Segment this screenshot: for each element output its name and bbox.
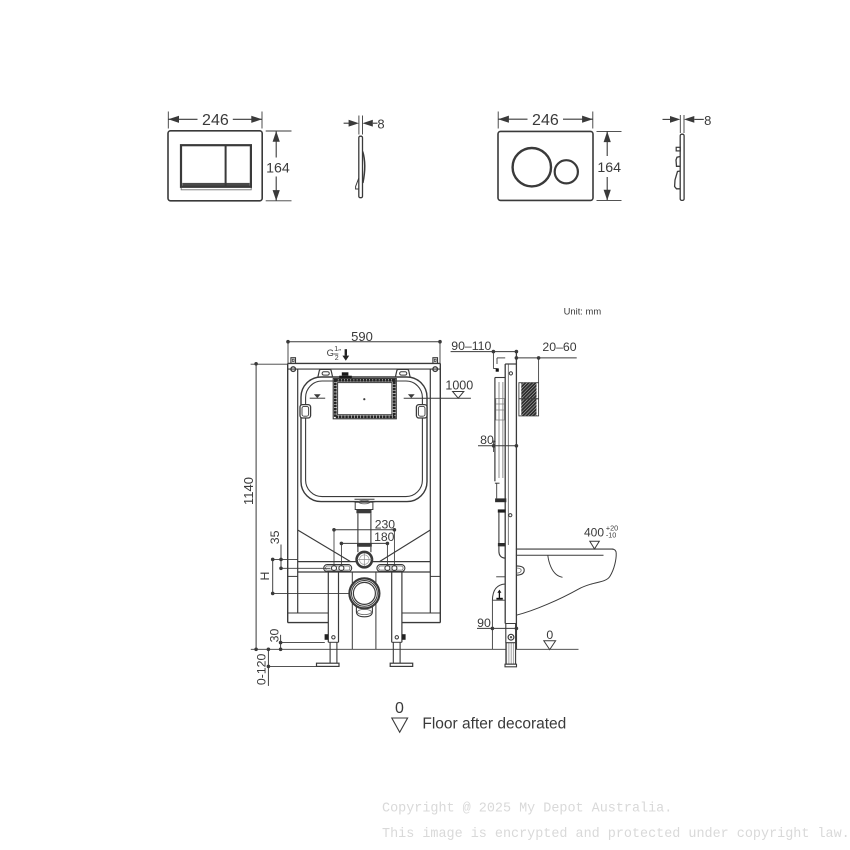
svg-text:246: 246	[532, 112, 559, 129]
svg-text:Floor after decorated: Floor after decorated	[422, 716, 566, 733]
svg-text:164: 164	[597, 160, 621, 176]
svg-text:0: 0	[395, 700, 404, 717]
svg-text:Copyright @ 2025 My Depot Aust: Copyright @ 2025 My Depot Australia.	[382, 802, 672, 817]
svg-text:246: 246	[202, 112, 229, 129]
svg-text:1140: 1140	[241, 477, 256, 505]
svg-text:80: 80	[480, 433, 494, 447]
svg-text:Unit: mm: Unit: mm	[564, 305, 602, 316]
svg-text:90–110: 90–110	[451, 339, 491, 353]
svg-text:90: 90	[477, 616, 491, 630]
svg-text:0-120: 0-120	[255, 654, 269, 686]
svg-text:H: H	[258, 572, 272, 581]
svg-text:30: 30	[268, 629, 282, 643]
svg-text:1000: 1000	[445, 379, 473, 393]
svg-text:20–60: 20–60	[542, 340, 576, 354]
svg-text:″: ″	[338, 347, 341, 356]
svg-text:2: 2	[335, 355, 339, 362]
svg-text:164: 164	[266, 160, 290, 176]
svg-text:This image is encrypted and pr: This image is encrypted and protected un…	[382, 827, 850, 842]
svg-text:35: 35	[268, 530, 282, 544]
svg-text:-10: -10	[606, 530, 616, 539]
svg-text:400: 400	[584, 526, 604, 540]
svg-text:8: 8	[704, 113, 711, 128]
svg-text:590: 590	[351, 329, 373, 344]
svg-text:180: 180	[374, 530, 395, 544]
svg-text:8: 8	[377, 116, 384, 131]
svg-text:0: 0	[546, 628, 553, 642]
svg-text:G: G	[327, 348, 334, 359]
